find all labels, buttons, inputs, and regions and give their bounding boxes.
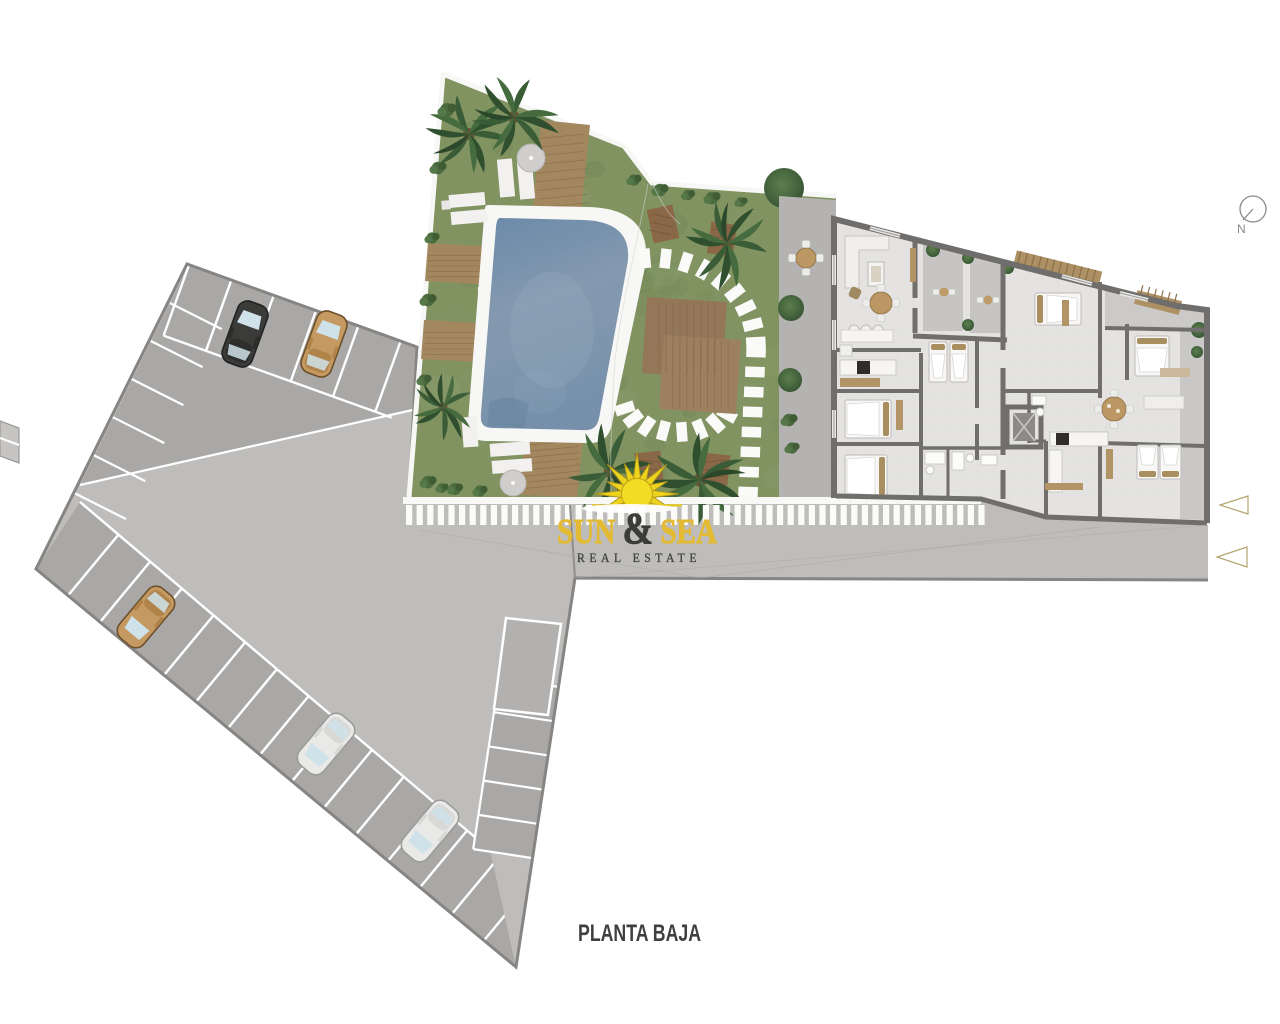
svg-text:N: N	[1237, 222, 1246, 236]
svg-text:SUN & SEA: SUN & SEA	[557, 504, 718, 553]
svg-text:PLANTA BAJA: PLANTA BAJA	[578, 920, 701, 947]
svg-text:REAL ESTATE: REAL ESTATE	[577, 550, 701, 565]
